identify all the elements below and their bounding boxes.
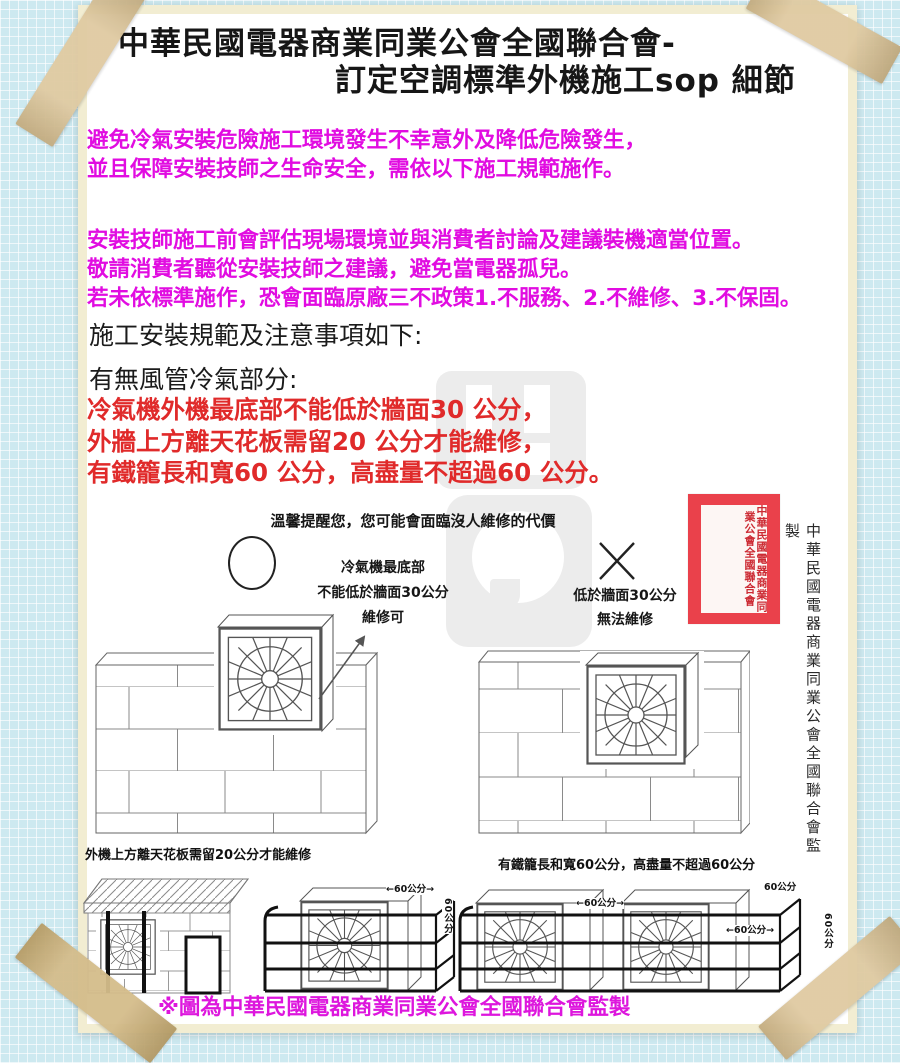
caption-ceiling-clearance: 外機上方離天花板需留20公分才能維修 (85, 844, 311, 863)
notice-line: 若未依標準施作，恐會面臨原廠三不政策1.不服務、2.不維修、3.不保固。 (87, 284, 801, 313)
dimension-label: ←60公分→ (576, 898, 624, 909)
figure-reminder-text: 溫馨提醒您，您可能會面臨沒人維修的代價 (213, 510, 613, 531)
ok-annotation-line: 冷氣機最底部 (288, 556, 478, 581)
notice-line: 安裝技師施工前會評估現場環境並與消費者討論及建議裝機適當位置。 (87, 226, 801, 255)
notice-line: 敬請消費者聽從安裝技師之建議，避免當電器孤兒。 (87, 255, 801, 284)
rule-line: 有鐵籠長和寬60 公分，高盡量不超過60 公分。 (87, 457, 613, 489)
rule-line: 外牆上方離天花板需留20 公分才能維修， (87, 426, 613, 458)
ok-annotation-line: 維修可 (288, 606, 478, 631)
dimension-label: ←60公分→ (726, 925, 774, 936)
page-title-line2: 訂定空調標準外機施工sop 細節 (335, 55, 796, 100)
x-mark-symbol (595, 538, 639, 584)
dimension-label: ←60公分→ (386, 884, 434, 895)
bad-annotation-line: 無法維修 (540, 608, 710, 632)
heading-spec: 施工安裝規範及注意事項如下: (89, 316, 422, 352)
cage-diagram-double (450, 877, 820, 999)
ok-circle-symbol (228, 536, 276, 590)
heading-section: 有無風管冷氣部分: (89, 360, 297, 396)
side-vertical-note: 中華民國電器商業同業公會全國聯合會監製 (782, 523, 824, 868)
rules-paragraph: 冷氣機外機最底部不能低於牆面30 公分， 外牆上方離天花板需留20 公分才能維修… (87, 394, 613, 489)
caption-cage-size: 有鐵籠長和寬60公分，高盡量不超過60公分 (498, 854, 755, 873)
ok-annotation-line: 不能低於牆面30公分 (288, 581, 478, 606)
footer-note: ※圖為中華民國電器商業同業公會全國聯合會監製 (158, 990, 630, 1021)
wall-diagram-bad (474, 645, 750, 841)
intro-line: 並且保障安裝技師之生命安全，需依以下施工規範施作。 (87, 155, 646, 184)
intro-paragraph: 避免冷氣安裝危險施工環境發生不幸意外及降低危險發生， 並且保障安裝技師之生命安全… (87, 126, 646, 184)
dimension-label: 60公分 (764, 882, 796, 893)
intro-line: 避免冷氣安裝危險施工環境發生不幸意外及降低危險發生， (87, 126, 646, 155)
association-seal-stamp: 中華民國電器商業同業公會全國聯合會 (688, 494, 780, 624)
bad-annotation: 低於牆面30公分 無法維修 (540, 584, 710, 632)
dimension-label-vertical: 60公分 (442, 898, 453, 934)
poster-paper: 中華民國電器商業同業公會全國聯合會- 訂定空調標準外機施工sop 細節 避免冷氣… (78, 5, 857, 1033)
poster-page: { "title": { "line1": "中華民國電器商業同業公會全國聯合會… (0, 0, 900, 1049)
notice-paragraph: 安裝技師施工前會評估現場環境並與消費者討論及建議裝機適當位置。 敬請消費者聽從安… (87, 226, 801, 313)
ok-annotation: 冷氣機最底部 不能低於牆面30公分 維修可 (288, 556, 478, 631)
wall-diagram-ok (81, 603, 381, 843)
cage-diagram-single (250, 877, 465, 999)
watermark-notch (490, 579, 520, 609)
rule-line: 冷氣機外機最底部不能低於牆面30 公分， (87, 394, 613, 426)
bad-annotation-line: 低於牆面30公分 (540, 584, 710, 608)
seal-text: 中華民國電器商業同業公會全國聯合會 (701, 505, 767, 613)
dimension-label-vertical: 60公分 (822, 913, 833, 949)
